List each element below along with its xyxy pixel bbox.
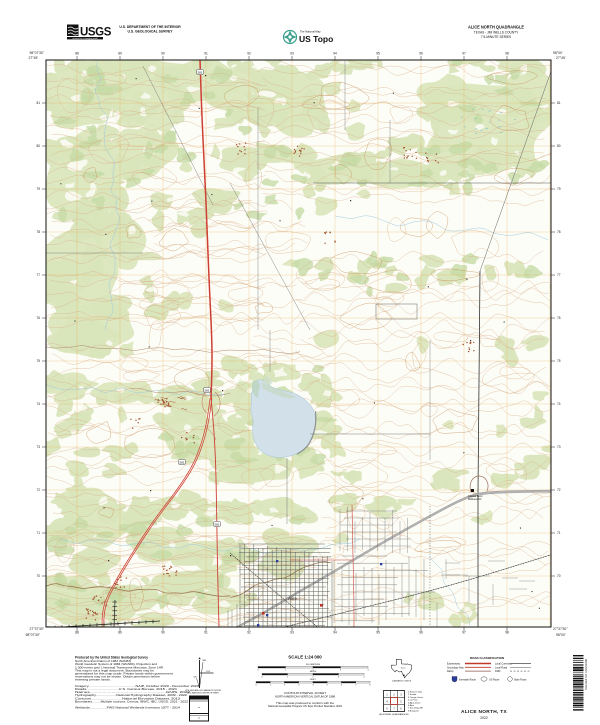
svg-text:DECLINATION AT CENTER OF SHEET: DECLINATION AT CENTER OF SHEET	[187, 692, 220, 695]
svg-text:CONTOUR INTERVAL 10 FEET: CONTOUR INTERVAL 10 FEET	[284, 691, 326, 695]
svg-text:NORTH AMERICAN VERTICAL DATUM: NORTH AMERICAN VERTICAL DATUM OF 1988	[275, 695, 336, 699]
svg-text:81: 81	[557, 101, 561, 105]
svg-text:The National Map: The National Map	[300, 30, 321, 34]
svg-text:State Route: State Route	[514, 679, 527, 682]
svg-text:95: 95	[376, 631, 380, 635]
svg-text:88: 88	[75, 52, 79, 56]
svg-text:72: 72	[557, 488, 561, 492]
svg-text:281: 281	[179, 460, 184, 464]
svg-text:2 Sandia: 2 Sandia	[408, 694, 417, 696]
svg-text:3 Orange Grove: 3 Orange Grove	[408, 696, 424, 699]
svg-text:Alice: Alice	[288, 596, 298, 601]
svg-text:Texas: Texas	[401, 668, 406, 670]
svg-text:science for a changing world: science for a changing world	[72, 38, 97, 40]
svg-text:USGS: USGS	[80, 27, 112, 39]
svg-text:80: 80	[36, 144, 40, 148]
svg-text:76: 76	[36, 316, 40, 320]
svg-text:98: 98	[505, 52, 509, 56]
svg-text:78: 78	[557, 230, 561, 234]
svg-text:97: 97	[462, 52, 466, 56]
svg-text:95: 95	[376, 52, 380, 56]
svg-text:79: 79	[36, 187, 40, 191]
svg-text:94: 94	[333, 52, 337, 56]
svg-text:98°00': 98°00'	[553, 51, 563, 55]
svg-text:94: 94	[333, 631, 337, 635]
svg-text:70: 70	[36, 574, 40, 578]
svg-text:ALICE NORTH, TX: ALICE NORTH, TX	[461, 709, 508, 715]
svg-text:72: 72	[36, 488, 40, 492]
svg-text:Produced by the United States: Produced by the United States Geological…	[75, 656, 148, 660]
svg-text:U.S. GEOLOGICAL SURVEY: U.S. GEOLOGICAL SURVEY	[127, 30, 173, 34]
svg-text:Ramp: Ramp	[447, 670, 454, 673]
svg-text:5 Agua Dulce: 5 Agua Dulce	[408, 701, 421, 704]
svg-text:Boundaries.........Multiple so: Boundaries.........Multiple sources; Cen…	[75, 700, 189, 703]
svg-text:6 Alice: 6 Alice	[408, 704, 415, 707]
svg-text:National Geospatial Program US: National Geospatial Program US Topo Prod…	[268, 705, 343, 708]
svg-text:U.S. DEPARTMENT OF THE INTERIO: U.S. DEPARTMENT OF THE INTERIOR	[119, 25, 181, 29]
svg-text:Local Connector: Local Connector	[495, 663, 513, 666]
svg-text:97: 97	[462, 631, 466, 635]
svg-text:98: 98	[505, 631, 509, 635]
svg-text:8 Banquete: 8 Banquete	[408, 709, 419, 712]
svg-text:98°07'30": 98°07'30"	[29, 51, 44, 55]
svg-text:TEXAS - JIM WELLS COUNTY: TEXAS - JIM WELLS COUNTY	[474, 30, 519, 34]
svg-text:QUADRANGLE LOCATION: QUADRANGLE LOCATION	[392, 680, 412, 683]
svg-text:71: 71	[557, 531, 561, 535]
svg-text:US Topo: US Topo	[299, 34, 333, 44]
svg-text:27°37'30": 27°37'30"	[29, 627, 44, 631]
svg-text:27°45': 27°45'	[28, 56, 38, 60]
svg-text:92: 92	[247, 52, 251, 56]
svg-text:ROAD CLASSIFICATION: ROAD CLASSIFICATION	[470, 656, 504, 660]
svg-text:281: 281	[204, 388, 209, 392]
svg-text:Expressway: Expressway	[447, 663, 461, 666]
svg-text:98°07'30": 98°07'30"	[25, 633, 40, 637]
svg-text:71: 71	[36, 531, 40, 535]
svg-text:27°45': 27°45'	[556, 56, 566, 60]
svg-text:92: 92	[247, 631, 251, 635]
svg-text:SCALE 1:24 000: SCALE 1:24 000	[288, 655, 322, 660]
svg-text:79: 79	[557, 187, 561, 191]
svg-text:FEET: FEET	[310, 679, 316, 681]
svg-text:77: 77	[557, 273, 561, 277]
svg-text:93: 93	[290, 52, 294, 56]
svg-text:76: 76	[557, 316, 561, 320]
svg-text:7.5-MINUTE SERIES: 7.5-MINUTE SERIES	[481, 35, 511, 39]
svg-text:entering private lands.: entering private lands.	[75, 679, 111, 682]
svg-text:77: 77	[36, 273, 40, 277]
svg-text:74: 74	[557, 402, 561, 406]
svg-text:NGA REF NO. USGSX24K: NGA REF NO. USGSX24K	[584, 659, 588, 690]
svg-text:73: 73	[36, 445, 40, 449]
svg-text:Wetlands.................FWS N: Wetlands.................FWS National We…	[75, 707, 181, 710]
svg-text:91: 91	[204, 631, 208, 635]
svg-text:81: 81	[36, 101, 40, 105]
svg-text:4 La Fruta: 4 La Fruta	[408, 699, 418, 702]
svg-text:75: 75	[557, 359, 561, 363]
svg-text:96: 96	[419, 52, 423, 56]
svg-text:90: 90	[161, 52, 165, 56]
svg-text:2022: 2022	[480, 716, 488, 720]
svg-text:4WD: 4WD	[495, 670, 501, 673]
svg-text:96: 96	[419, 631, 423, 635]
svg-text:MN: MN	[203, 660, 207, 662]
svg-text:Local Road: Local Road	[495, 666, 508, 669]
svg-text:88: 88	[75, 631, 79, 635]
svg-text:2°04': 2°04'	[206, 671, 211, 673]
svg-text:70: 70	[557, 574, 561, 578]
svg-text:UTM GRID AND 2022 MAGNETIC NOR: UTM GRID AND 2022 MAGNETIC NORTH	[185, 689, 221, 692]
svg-text:KILOMETERS: KILOMETERS	[306, 664, 321, 666]
svg-text:Wellness Ctr: Wellness Ctr	[468, 498, 482, 501]
svg-text:★: ★	[198, 657, 201, 661]
svg-text:73: 73	[557, 445, 561, 449]
svg-text:7 San Diego NE: 7 San Diego NE	[408, 708, 424, 710]
svg-text:78: 78	[36, 230, 40, 234]
svg-text:75: 75	[36, 359, 40, 363]
svg-text:1 Rancho Viejo: 1 Rancho Viejo	[408, 692, 423, 694]
svg-text:91: 91	[204, 52, 208, 56]
svg-text:ALICE NORTH QUADRANGLE: ALICE NORTH QUADRANGLE	[468, 25, 524, 30]
svg-text:281: 281	[197, 70, 202, 74]
svg-text:93: 93	[290, 631, 294, 635]
svg-text:80: 80	[557, 144, 561, 148]
svg-text:Interstate Route: Interstate Route	[459, 679, 477, 682]
svg-text:89: 89	[118, 52, 122, 56]
svg-text:281: 281	[214, 522, 219, 526]
svg-text:98°00': 98°00'	[556, 633, 566, 637]
svg-text:27°37'30": 27°37'30"	[553, 627, 568, 631]
svg-text:89: 89	[118, 631, 122, 635]
svg-text:MILES: MILES	[310, 671, 317, 673]
svg-text:US Route: US Route	[489, 679, 500, 682]
svg-text:ADJOINING QUADRANGLES: ADJOINING QUADRANGLES	[379, 713, 409, 716]
svg-text:90: 90	[161, 631, 165, 635]
svg-text:Secondary Hwy: Secondary Hwy	[447, 666, 465, 669]
svg-text:74: 74	[36, 402, 40, 406]
